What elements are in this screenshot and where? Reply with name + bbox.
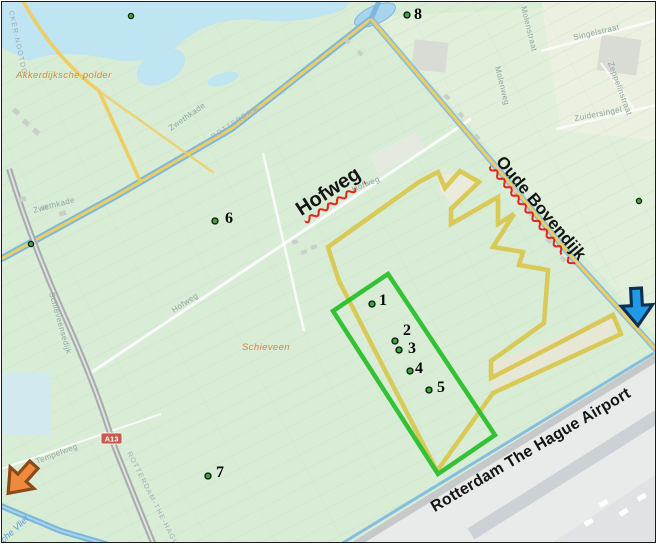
- map-canvas: CKER-NOOTDO Zwethkade Zwethkade ROTTERDA…: [2, 2, 655, 542]
- motorway-badge: A13: [101, 433, 122, 444]
- point-number-label: 6: [225, 210, 233, 227]
- point-number-label: 3: [408, 340, 416, 357]
- map-dot: [28, 241, 33, 246]
- point-number-label: 7: [216, 464, 224, 481]
- map-dot: [636, 198, 641, 203]
- point-number-label: 8: [414, 6, 422, 23]
- point-marker-dot: [205, 473, 211, 479]
- point-number-label: 2: [403, 322, 411, 339]
- area-label-akkerdijksche-polder: Akkerdijksche polder: [15, 70, 112, 81]
- area-label-schieveen: Schieveen: [242, 342, 290, 353]
- point-marker-dot: [407, 368, 413, 374]
- point-marker-dot: [426, 387, 432, 393]
- motorway-badge-text: A13: [105, 435, 119, 444]
- point-marker-dot: [396, 347, 402, 353]
- point-number-label: 5: [437, 379, 445, 396]
- point-marker-dot: [404, 12, 410, 18]
- point-marker-dot: [392, 338, 398, 344]
- point-marker-dot: [369, 301, 375, 307]
- map-image[interactable]: CKER-NOOTDO Zwethkade Zwethkade ROTTERDA…: [1, 1, 656, 543]
- screenshot: CKER-NOOTDO Zwethkade Zwethkade ROTTERDA…: [0, 0, 659, 549]
- map-dot: [128, 13, 133, 18]
- point-number-label: 1: [379, 292, 387, 309]
- point-number-label: 4: [415, 360, 423, 377]
- point-marker-dot: [212, 218, 218, 224]
